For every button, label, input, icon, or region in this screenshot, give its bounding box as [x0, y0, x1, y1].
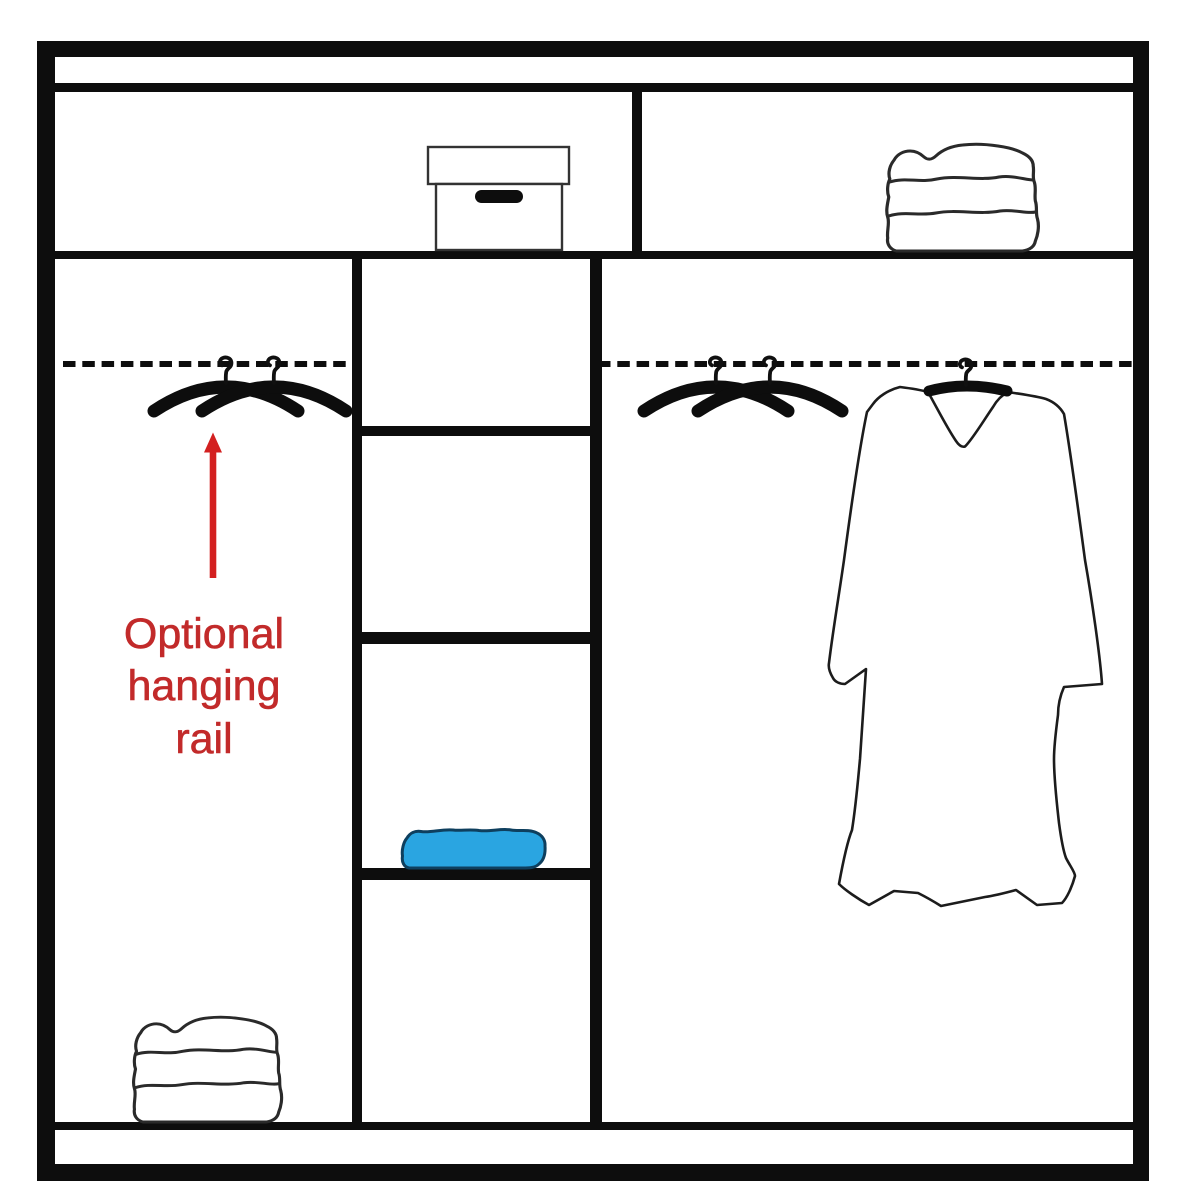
svg-text:Optional: Optional [124, 610, 284, 658]
svg-text:hanging: hanging [127, 662, 280, 710]
svg-text:rail: rail [175, 715, 232, 763]
